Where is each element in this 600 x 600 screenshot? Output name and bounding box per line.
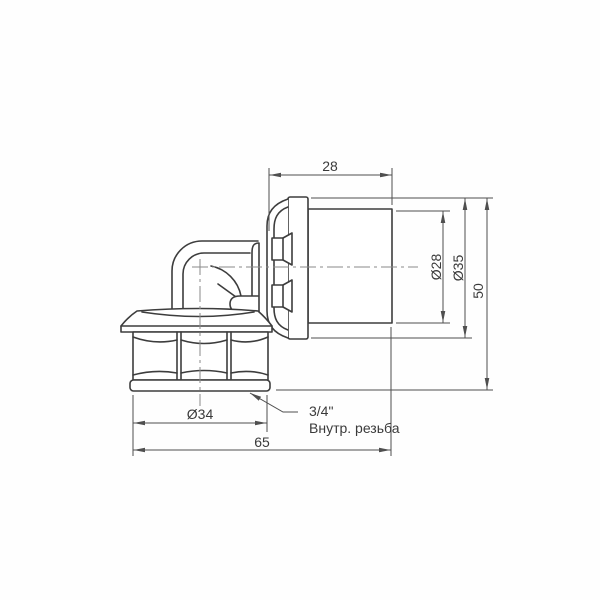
dim-label-sleeve-diameter: Ø28 — [428, 237, 444, 297]
collar-bell — [267, 199, 288, 338]
dim-label-nut-diameter: Ø34 — [170, 406, 230, 422]
dim-label-sleeve-length: 28 — [300, 158, 360, 174]
sleeve-flange — [288, 197, 308, 339]
dim-label-overall-width: 65 — [232, 434, 292, 450]
press-sleeve-cylinder — [308, 209, 392, 323]
skirt — [121, 309, 272, 333]
dim-label-overall-height: 50 — [470, 261, 486, 321]
fitting-linework — [0, 0, 600, 600]
thread-note-leader — [250, 393, 298, 412]
thread-note-text: Внутр. резьба — [309, 420, 400, 436]
thread-note-size: 3/4" — [309, 403, 333, 419]
dim-label-flange-diameter: Ø35 — [450, 238, 466, 298]
drawing-canvas: 28 Ø28 Ø35 50 Ø34 65 3/4" Внутр. резьба — [0, 0, 600, 600]
